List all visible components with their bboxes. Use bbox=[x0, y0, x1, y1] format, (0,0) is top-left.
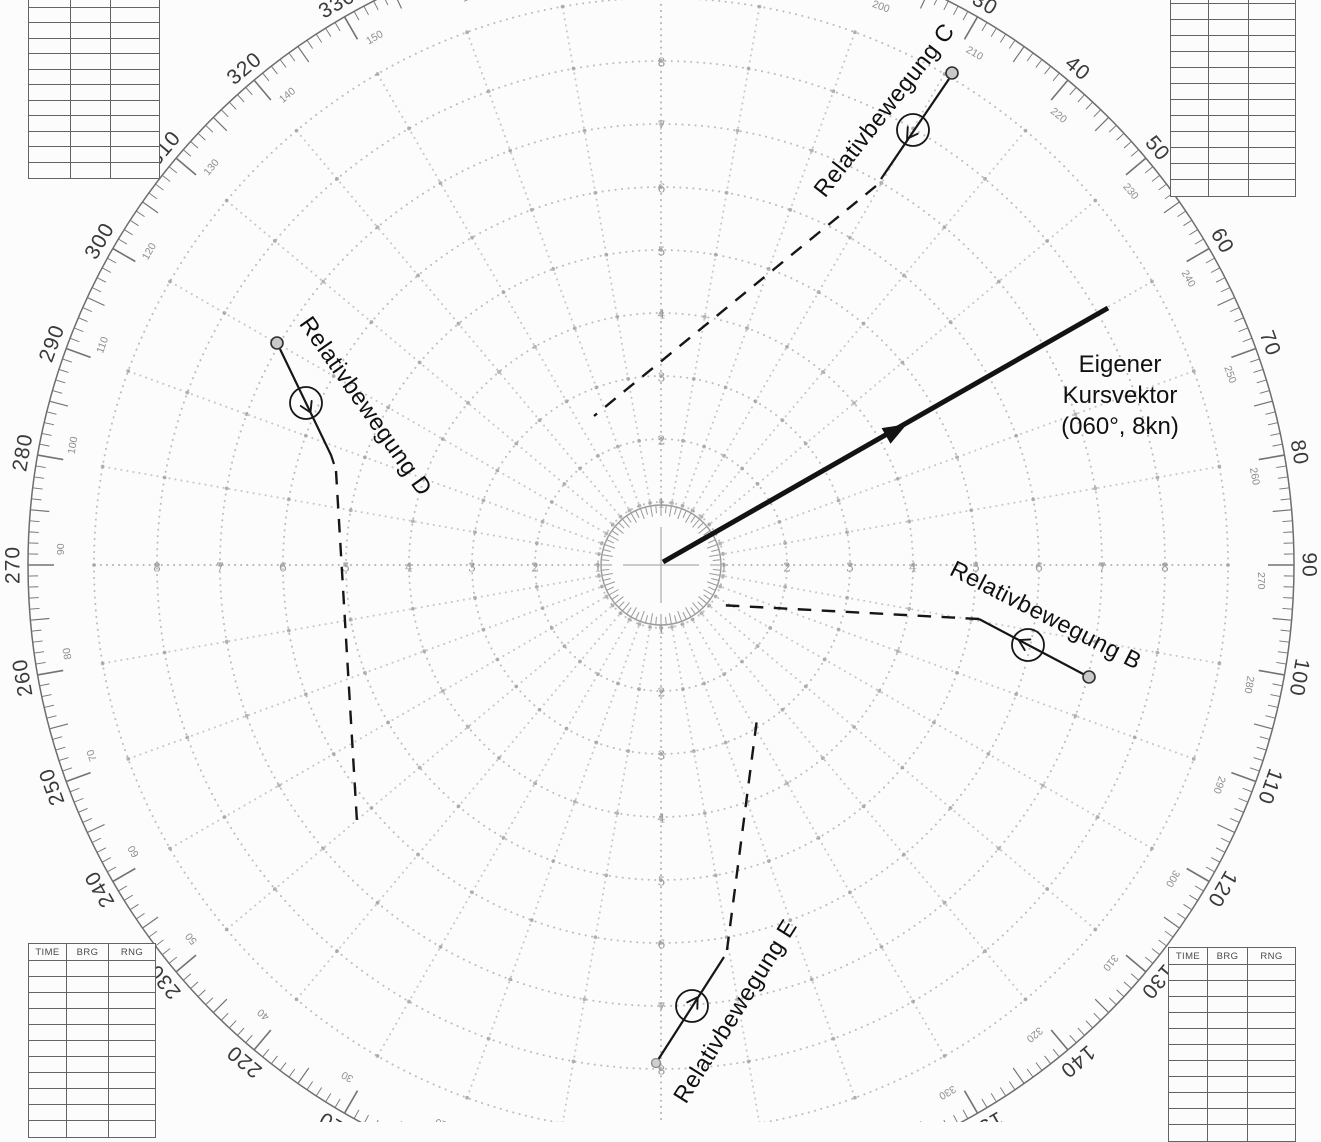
table-cell bbox=[67, 1089, 109, 1105]
table-row bbox=[1171, 68, 1295, 84]
table-cell bbox=[29, 54, 71, 70]
table-cell bbox=[111, 132, 159, 148]
table-cell bbox=[1171, 180, 1209, 196]
table-row bbox=[1169, 1029, 1295, 1045]
table-cell bbox=[109, 1089, 155, 1105]
ring-number: 6 bbox=[1035, 560, 1043, 575]
ring-number: 1 bbox=[720, 560, 728, 575]
relative-motion-dashed-line bbox=[719, 605, 979, 619]
bearing-label-inner: 30 bbox=[339, 1068, 355, 1084]
table-cell bbox=[71, 116, 111, 132]
ring-number: 3 bbox=[658, 748, 666, 763]
table-header-row: TIMEBRGRNG bbox=[1169, 948, 1295, 965]
table-row bbox=[29, 993, 155, 1009]
ring-number: 1 bbox=[658, 622, 666, 637]
table-cell bbox=[1171, 148, 1209, 164]
table-row bbox=[29, 1105, 155, 1121]
table-cell bbox=[29, 961, 67, 977]
bearing-label-inner: 120 bbox=[140, 241, 159, 262]
own-label-line: Kursvektor bbox=[1020, 380, 1220, 411]
ring-number: 7 bbox=[216, 560, 224, 575]
table-cell bbox=[67, 1025, 109, 1041]
bearing-label-inner: 260 bbox=[1247, 467, 1262, 486]
observation-table-bottom-right: TIMEBRGRNG bbox=[1168, 947, 1296, 1142]
ring-number: 7 bbox=[658, 1000, 666, 1015]
table-cell bbox=[1169, 1013, 1208, 1029]
table-cell bbox=[1171, 20, 1209, 36]
radar-plotting-sheet: 0102030405060708090100110120130140150160… bbox=[0, 0, 1321, 1122]
table-cell bbox=[29, 163, 71, 179]
ring-number: 1 bbox=[594, 560, 602, 575]
table-row bbox=[1169, 1013, 1295, 1029]
bearing-label-inner: 20 bbox=[433, 1116, 448, 1122]
table-row bbox=[1169, 1109, 1295, 1125]
table-row bbox=[1169, 1045, 1295, 1061]
observation-table-top-right bbox=[1170, 0, 1296, 197]
table-cell bbox=[1171, 84, 1209, 100]
col-header-rng: RNG bbox=[109, 944, 155, 961]
ring-number: 3 bbox=[468, 560, 476, 575]
table-row bbox=[29, 23, 159, 39]
observation-table-top-left bbox=[28, 0, 160, 179]
table-row bbox=[1171, 148, 1295, 164]
bearing-label-outer: 140 bbox=[1056, 1040, 1100, 1082]
ring-number: 2 bbox=[531, 560, 539, 575]
table-row bbox=[29, 116, 159, 132]
bearing-label-inner: 230 bbox=[1120, 181, 1141, 202]
table-row bbox=[29, 101, 159, 117]
table-cell bbox=[1249, 84, 1295, 100]
relative-motion-dashed-line bbox=[727, 719, 757, 950]
table-cell bbox=[1248, 1109, 1295, 1125]
table-row bbox=[29, 0, 159, 8]
table-row bbox=[29, 1089, 155, 1105]
bearing-label-inner: 300 bbox=[1163, 868, 1182, 889]
table-cell bbox=[111, 8, 159, 24]
table-cell bbox=[71, 85, 111, 101]
table-row bbox=[1171, 164, 1295, 180]
table-cell bbox=[71, 163, 111, 179]
table-row bbox=[29, 163, 159, 179]
table-cell bbox=[1169, 1077, 1208, 1093]
relative-vector-label: Relativbewegung B bbox=[946, 556, 1146, 675]
bearing-label-inner: 290 bbox=[1211, 775, 1228, 796]
bearing-label-outer: 90 bbox=[1298, 552, 1321, 577]
bearing-label-inner: 330 bbox=[937, 1083, 958, 1102]
table-cell bbox=[29, 1105, 67, 1121]
table-cell bbox=[1169, 1125, 1208, 1141]
table-row bbox=[29, 147, 159, 163]
table-cell bbox=[71, 70, 111, 86]
col-header-brg: BRG bbox=[1208, 948, 1248, 965]
ring-number: 7 bbox=[658, 118, 666, 133]
ring-number: 2 bbox=[658, 433, 666, 448]
ring-number: 8 bbox=[153, 560, 161, 575]
table-cell bbox=[1171, 4, 1209, 20]
bearing-label-inner: 50 bbox=[183, 930, 200, 947]
ring-number: 2 bbox=[658, 685, 666, 700]
ring-number: 5 bbox=[658, 874, 666, 889]
bearing-label-inner: 130 bbox=[201, 157, 222, 178]
table-cell bbox=[1171, 116, 1209, 132]
table-cell bbox=[1248, 1077, 1295, 1093]
bearing-label-outer: 320 bbox=[223, 48, 267, 90]
table-cell bbox=[29, 147, 71, 163]
table-cell bbox=[71, 132, 111, 148]
table-cell bbox=[29, 8, 71, 24]
table-cell bbox=[1169, 1045, 1208, 1061]
table-cell bbox=[67, 1121, 109, 1137]
table-row bbox=[1171, 4, 1295, 20]
table-cell bbox=[67, 1041, 109, 1057]
bearing-label-outer: 40 bbox=[1060, 52, 1094, 86]
table-cell bbox=[67, 961, 109, 977]
table-cell bbox=[109, 993, 155, 1009]
bearing-label-inner: 210 bbox=[964, 44, 985, 63]
table-cell bbox=[29, 39, 71, 55]
table-row bbox=[1171, 180, 1295, 196]
first-plot-dot bbox=[652, 1059, 661, 1068]
table-cell bbox=[1249, 52, 1295, 68]
table-row bbox=[1171, 116, 1295, 132]
table-cell bbox=[1249, 4, 1295, 20]
table-cell bbox=[29, 1089, 67, 1105]
table-cell bbox=[1209, 20, 1249, 36]
bearing-label-inner: 200 bbox=[871, 0, 892, 15]
table-row bbox=[29, 1057, 155, 1073]
table-cell bbox=[111, 0, 159, 8]
table-cell bbox=[1209, 52, 1249, 68]
table-cell bbox=[29, 1009, 67, 1025]
table-cell bbox=[1171, 100, 1209, 116]
table-cell bbox=[71, 0, 111, 8]
bearing-label-inner: 100 bbox=[66, 436, 81, 455]
bearing-label-inner: 90 bbox=[55, 543, 67, 555]
ring-number: 6 bbox=[658, 937, 666, 952]
table-cell bbox=[111, 39, 159, 55]
table-row bbox=[29, 54, 159, 70]
table-cell bbox=[1171, 164, 1209, 180]
table-cell bbox=[29, 1041, 67, 1057]
table-cell bbox=[1208, 1109, 1248, 1125]
table-cell bbox=[1169, 1029, 1208, 1045]
table-cell bbox=[1208, 981, 1248, 997]
table-cell bbox=[109, 1073, 155, 1089]
table-cell bbox=[1208, 1093, 1248, 1109]
table-cell bbox=[1249, 68, 1295, 84]
table-row bbox=[29, 70, 159, 86]
bearing-label-outer: 100 bbox=[1285, 657, 1314, 698]
own-label-line: (060°, 8kn) bbox=[1020, 411, 1220, 442]
relative-vector-b: Relativbewegung B bbox=[719, 556, 1146, 683]
table-cell bbox=[111, 70, 159, 86]
table-row bbox=[1169, 1125, 1295, 1141]
table-cell bbox=[29, 70, 71, 86]
table-cell bbox=[109, 1057, 155, 1073]
table-cell bbox=[1209, 164, 1249, 180]
table-cell bbox=[109, 961, 155, 977]
table-cell bbox=[1249, 36, 1295, 52]
ring-number: 8 bbox=[658, 55, 666, 70]
table-cell bbox=[29, 1057, 67, 1073]
table-row bbox=[1169, 981, 1295, 997]
table-cell bbox=[1209, 148, 1249, 164]
table-row bbox=[29, 977, 155, 993]
bearing-label-inner: 80 bbox=[61, 647, 75, 661]
first-plot-dot bbox=[271, 337, 283, 349]
bearing-label-inner: 310 bbox=[1100, 952, 1121, 973]
col-header-brg: BRG bbox=[67, 944, 109, 961]
table-row bbox=[1169, 1077, 1295, 1093]
ring-number: 4 bbox=[909, 560, 917, 575]
table-cell bbox=[1208, 965, 1248, 981]
bearing-label-inner: 140 bbox=[277, 85, 298, 106]
own-course-label: Eigener Kursvektor (060°, 8kn) bbox=[1020, 349, 1220, 442]
bearing-label-outer: 70 bbox=[1255, 328, 1285, 360]
table-cell bbox=[109, 1105, 155, 1121]
bearing-label-inner: 250 bbox=[1221, 364, 1238, 385]
bearing-label-outer: 30 bbox=[968, 0, 1001, 20]
table-cell bbox=[1248, 1125, 1295, 1141]
relative-vector-c: Relativbewegung C bbox=[594, 18, 960, 416]
table-cell bbox=[109, 1041, 155, 1057]
table-cell bbox=[29, 993, 67, 1009]
table-cell bbox=[1208, 1125, 1248, 1141]
table-header-row: TIMEBRGRNG bbox=[29, 944, 155, 961]
bearing-label-inner: 270 bbox=[1255, 572, 1267, 590]
bearing-label-inner: 220 bbox=[1048, 105, 1069, 126]
table-cell bbox=[29, 0, 71, 8]
table-cell bbox=[111, 54, 159, 70]
table-cell bbox=[1248, 1061, 1295, 1077]
table-cell bbox=[109, 977, 155, 993]
table-cell bbox=[111, 85, 159, 101]
table-row bbox=[1171, 84, 1295, 100]
ring-number: 7 bbox=[1098, 560, 1106, 575]
table-cell bbox=[1208, 997, 1248, 1013]
bearing-label-inner: 110 bbox=[94, 335, 111, 355]
bearing-label-outer: 220 bbox=[223, 1040, 267, 1082]
table-row bbox=[29, 1025, 155, 1041]
table-cell bbox=[71, 54, 111, 70]
table-cell bbox=[1209, 84, 1249, 100]
bearing-label-outer: 260 bbox=[8, 657, 37, 698]
table-cell bbox=[67, 977, 109, 993]
ring-number: 2 bbox=[783, 560, 791, 575]
table-cell bbox=[29, 23, 71, 39]
table-cell bbox=[109, 1121, 155, 1137]
table-cell bbox=[1169, 1093, 1208, 1109]
table-cell bbox=[1248, 1029, 1295, 1045]
table-cell bbox=[1249, 164, 1295, 180]
table-cell bbox=[67, 1057, 109, 1073]
bearing-label-inner: 280 bbox=[1241, 675, 1256, 694]
bearing-label-inner: 40 bbox=[255, 1006, 272, 1023]
relative-vector-label: Relativbewegung D bbox=[294, 312, 437, 501]
table-cell bbox=[1248, 1093, 1295, 1109]
table-cell bbox=[1248, 1045, 1295, 1061]
table-cell bbox=[1171, 132, 1209, 148]
ring-number: 6 bbox=[658, 181, 666, 196]
col-header-time: TIME bbox=[1169, 948, 1208, 965]
table-cell bbox=[1209, 36, 1249, 52]
bearing-label-inner: 70 bbox=[84, 748, 99, 763]
table-cell bbox=[71, 101, 111, 117]
table-cell bbox=[29, 132, 71, 148]
bearing-label-outer: 250 bbox=[35, 765, 70, 809]
bearing-label-outer: 80 bbox=[1286, 438, 1313, 467]
table-cell bbox=[1208, 1029, 1248, 1045]
table-cell bbox=[1209, 116, 1249, 132]
table-cell bbox=[29, 977, 67, 993]
table-row bbox=[1171, 20, 1295, 36]
table-row bbox=[1169, 965, 1295, 981]
table-row bbox=[29, 1121, 155, 1137]
table-row bbox=[29, 8, 159, 24]
ring-number: 3 bbox=[658, 370, 666, 385]
table-cell bbox=[29, 101, 71, 117]
ring-number: 6 bbox=[279, 560, 287, 575]
table-cell bbox=[1171, 52, 1209, 68]
own-vector-arrowhead bbox=[882, 424, 907, 444]
observation-table-bottom-left: TIMEBRGRNG bbox=[28, 943, 156, 1138]
table-cell bbox=[1249, 148, 1295, 164]
col-header-rng: RNG bbox=[1248, 948, 1295, 965]
table-cell bbox=[111, 163, 159, 179]
table-row bbox=[29, 961, 155, 977]
table-cell bbox=[29, 1025, 67, 1041]
first-plot-dot bbox=[1083, 671, 1095, 683]
bearing-label-outer: 270 bbox=[2, 546, 25, 584]
table-cell bbox=[29, 1073, 67, 1089]
table-row bbox=[29, 39, 159, 55]
table-cell bbox=[109, 1025, 155, 1041]
table-row bbox=[1169, 1061, 1295, 1077]
table-cell bbox=[1209, 180, 1249, 196]
bearing-label-outer: 280 bbox=[8, 432, 37, 473]
bearing-label-inner: 320 bbox=[1024, 1024, 1045, 1045]
table-cell bbox=[71, 8, 111, 24]
ring-number: 3 bbox=[846, 560, 854, 575]
relative-motion-dashed-line bbox=[336, 471, 357, 822]
table-cell bbox=[1171, 68, 1209, 84]
table-cell bbox=[29, 85, 71, 101]
table-row bbox=[29, 132, 159, 148]
table-cell bbox=[1249, 20, 1295, 36]
bearing-label-inner: 60 bbox=[126, 843, 142, 859]
table-cell bbox=[67, 993, 109, 1009]
table-cell bbox=[1248, 997, 1295, 1013]
bearing-label-outer: 300 bbox=[80, 219, 119, 263]
table-cell bbox=[1208, 1045, 1248, 1061]
table-row bbox=[1169, 997, 1295, 1013]
ring-number: 8 bbox=[1161, 560, 1169, 575]
col-header-time: TIME bbox=[29, 944, 67, 961]
bearing-label-inner: 160 bbox=[460, 0, 481, 5]
table-cell bbox=[67, 1105, 109, 1121]
table-cell bbox=[1249, 100, 1295, 116]
first-plot-dot bbox=[946, 67, 958, 79]
ring-number: 4 bbox=[658, 811, 666, 826]
table-cell bbox=[1169, 965, 1208, 981]
table-row bbox=[1171, 100, 1295, 116]
table-cell bbox=[67, 1073, 109, 1089]
table-cell bbox=[1248, 981, 1295, 997]
table-cell bbox=[67, 1009, 109, 1025]
ring-number: 5 bbox=[658, 244, 666, 259]
relative-vector-e: Relativbewegung E bbox=[652, 719, 802, 1107]
table-cell bbox=[1249, 180, 1295, 196]
own-label-line: Eigener bbox=[1020, 349, 1220, 380]
table-row bbox=[29, 1041, 155, 1057]
table-cell bbox=[71, 23, 111, 39]
table-row bbox=[1171, 52, 1295, 68]
table-row bbox=[1171, 132, 1295, 148]
table-cell bbox=[1169, 1109, 1208, 1125]
bearing-label-outer: 240 bbox=[80, 867, 119, 911]
ring-number: 1 bbox=[658, 496, 666, 511]
table-cell bbox=[1169, 1061, 1208, 1077]
table-row bbox=[29, 85, 159, 101]
table-cell bbox=[1248, 1013, 1295, 1029]
table-cell bbox=[111, 116, 159, 132]
bearing-label-outer: 110 bbox=[1253, 766, 1287, 808]
table-cell bbox=[111, 147, 159, 163]
table-cell bbox=[1209, 4, 1249, 20]
table-cell bbox=[111, 101, 159, 117]
bearing-label-outer: 120 bbox=[1203, 867, 1242, 911]
table-row bbox=[29, 1073, 155, 1089]
table-cell bbox=[1209, 68, 1249, 84]
table-row bbox=[1169, 1093, 1295, 1109]
table-cell bbox=[1208, 1061, 1248, 1077]
table-cell bbox=[111, 23, 159, 39]
table-cell bbox=[1249, 132, 1295, 148]
table-row bbox=[1171, 36, 1295, 52]
table-cell bbox=[1169, 981, 1208, 997]
table-cell bbox=[1208, 1077, 1248, 1093]
table-cell bbox=[1209, 132, 1249, 148]
table-cell bbox=[1208, 1013, 1248, 1029]
ring-number: 4 bbox=[658, 307, 666, 322]
bearing-label-inner: 150 bbox=[364, 28, 385, 47]
table-cell bbox=[1171, 36, 1209, 52]
table-cell bbox=[71, 39, 111, 55]
bearing-label-outer: 290 bbox=[35, 322, 70, 366]
table-cell bbox=[1209, 100, 1249, 116]
table-cell bbox=[29, 1121, 67, 1137]
table-cell bbox=[71, 147, 111, 163]
table-cell bbox=[1249, 116, 1295, 132]
table-row bbox=[29, 1009, 155, 1025]
bearing-label-inner: 240 bbox=[1179, 268, 1198, 289]
table-cell bbox=[29, 116, 71, 132]
table-cell bbox=[109, 1009, 155, 1025]
ring-number: 4 bbox=[405, 560, 413, 575]
table-cell bbox=[1248, 965, 1295, 981]
table-cell bbox=[1169, 997, 1208, 1013]
